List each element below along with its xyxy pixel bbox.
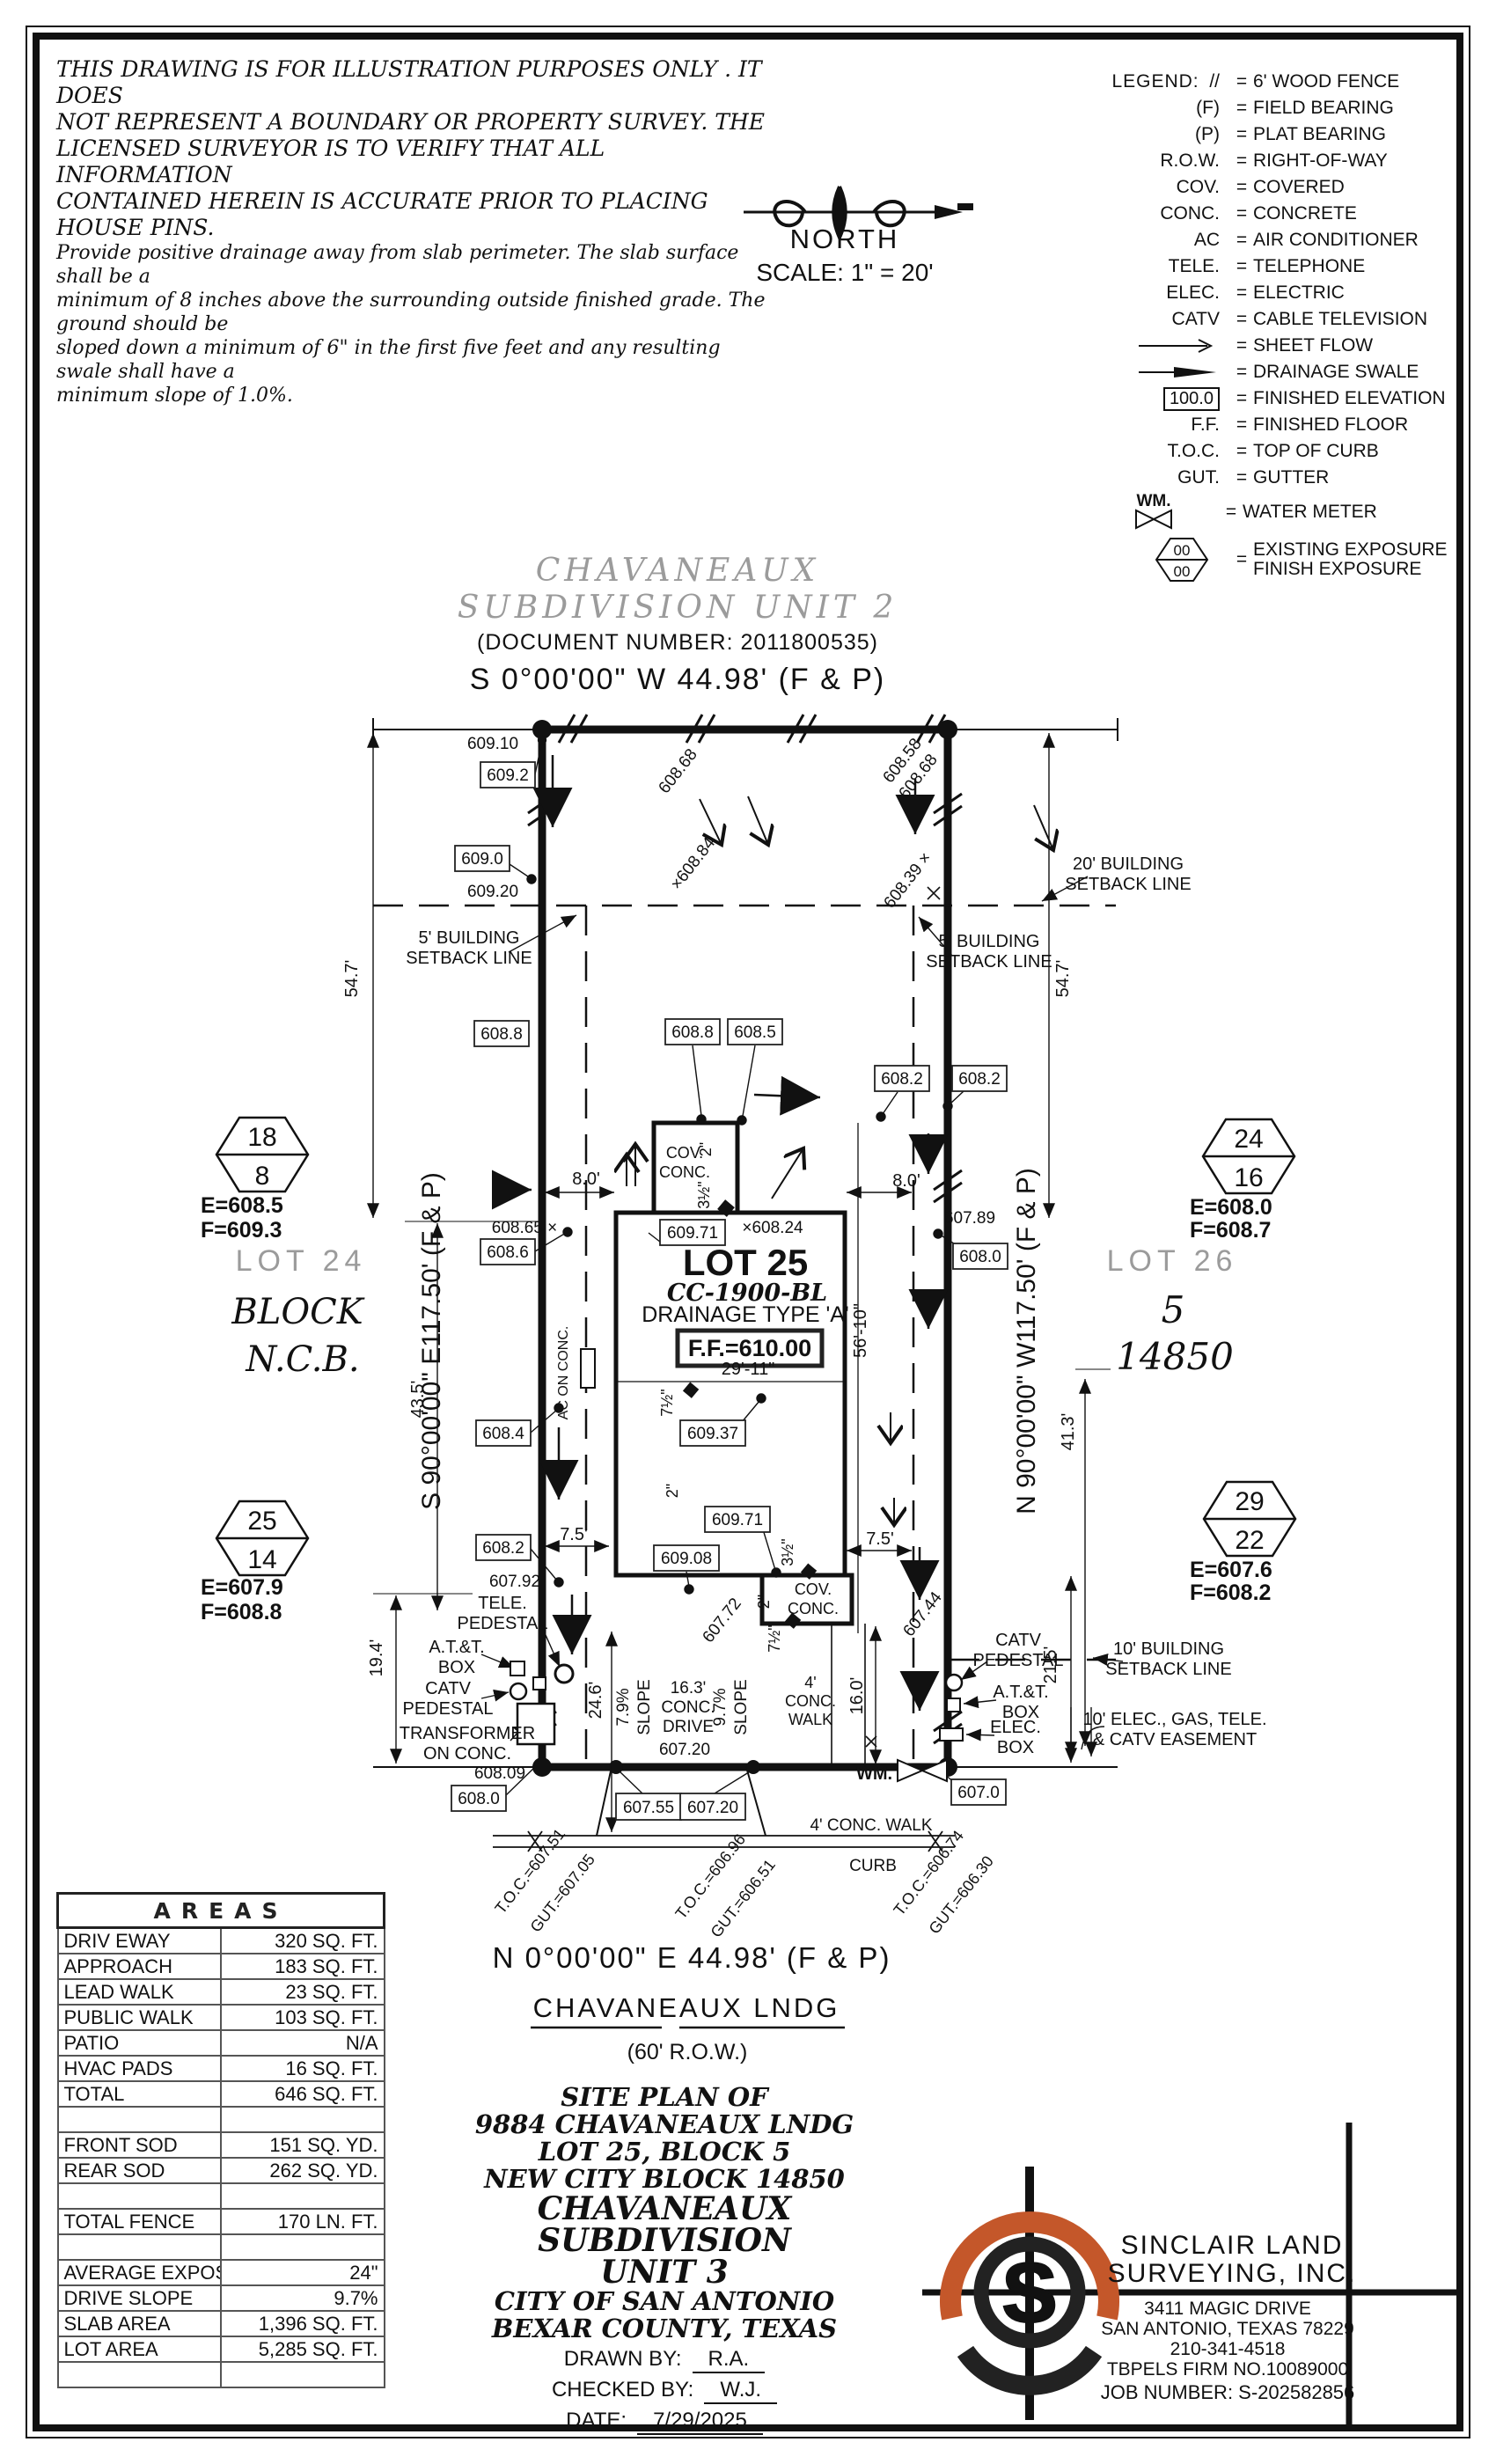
legend-symbol: R.O.W. [1098,150,1230,172]
table-row: PUBLIC WALK103 SQ. FT. [58,2005,385,2030]
dim-label: 2" [697,1142,715,1156]
dim-label: 29'-11" [722,1360,775,1379]
table-row: DRIVE SLOPE9.7% [58,2285,385,2311]
lot26-name: LOT 26 [1107,1244,1238,1278]
sheet-flow-icon [1098,335,1230,356]
north-label: NORTH [722,224,968,255]
areas-title: AREAS [58,1894,385,1928]
table-row [58,2362,385,2387]
equals: = [1230,467,1253,488]
site-info-block: SITE PLAN OF 9884 CHAVANEAUX LNDG LOT 25… [449,2084,880,2435]
equals: = [1230,98,1253,119]
finished-elevation-symbol: 100.0 [1163,387,1220,411]
equals: = [1230,309,1253,330]
legend-label: ELECTRIC [1253,283,1485,303]
area-label: TOTAL [58,2081,222,2107]
surveyor-firm: TBPELS FIRM NO.10089000 [1091,2359,1364,2380]
dim-label: 41.3' [1059,1413,1078,1451]
fence-symbol: // [1209,71,1220,92]
exposure-e: E=607.6 [1190,1558,1272,1582]
dim-label: 3½" [779,1538,796,1566]
elev-value: 608.2 [958,1070,1001,1089]
street-row: (60' R.O.W.) [627,2040,748,2064]
drainage-note-line: Provide positive drainage away from slab… [56,241,778,289]
equals: = [1220,502,1243,523]
surveyor-name: SURVEYING, INC. [1104,2260,1360,2288]
elev-value: 607.72 [699,1595,744,1646]
dim-label: 7.5' [560,1525,588,1544]
elev-value: 609.20 [467,883,518,901]
area-value: 151 SQ. YD. [221,2132,385,2158]
utility-label: PEDESTAL [973,1651,1064,1670]
slope-label: SLOPE [635,1679,654,1734]
dim-label: 24.6' [586,1682,605,1720]
easement-label: 10' ELEC., GAS, TELE. [1082,1710,1266,1729]
walk-label: 4' CONC. WALK [810,1816,932,1835]
hex-number: 29 [1235,1487,1264,1516]
hex-top: 00 [1174,542,1191,559]
elev-value: 608.2 [482,1539,524,1558]
area-label: DRIVE SLOPE [58,2285,222,2311]
legend-symbol: COV. [1098,177,1230,198]
elev-value: 608.8 [671,1023,714,1042]
disclaimer-line: NOT REPRESENT A BOUNDARY OR PROPERTY SUR… [56,109,778,136]
area-label [58,2183,222,2209]
hex-number: 18 [247,1123,276,1152]
area-label: REAR SOD [58,2158,222,2183]
site-plan-sheet: 609.2 609.0 608.8 608.6 608.4 608.2 608.… [0,0,1496,2464]
elev-value: 608.5 [734,1023,776,1042]
surveyor-name: SINCLAIR LAND [1104,2232,1360,2260]
lot24-ncb: N.C.B. [245,1339,359,1380]
area-label: LOT AREA [58,2336,222,2362]
exposure-f: F=608.7 [1190,1218,1271,1243]
area-value: 16 SQ. FT. [221,2056,385,2081]
table-row [58,2183,385,2209]
legend-label: COVERED [1253,178,1485,197]
legend-label: EXISTING EXPOSURE [1253,540,1485,560]
setback-label: 5' BUILDING [939,932,1040,951]
area-value: 170 LN. FT. [221,2209,385,2234]
legend-label: RIGHT-OF-WAY [1253,151,1485,171]
dim-label: 19.4' [367,1639,386,1677]
legend-label: PLAT BEARING [1253,125,1485,144]
hex-number: 14 [247,1545,276,1574]
area-label: AVERAGE EXPOSURE [58,2260,222,2285]
legend-symbol: CONC. [1098,203,1230,224]
dim-label: 56'-10" [851,1303,870,1358]
legend-label: CONCRETE [1253,204,1485,224]
area-label [58,2234,222,2260]
area-value: 183 SQ. FT. [221,1954,385,1979]
date-value: 7/29/2025 [637,2409,763,2435]
surveyor-job-number: JOB NUMBER: S-202582856 [1091,2382,1364,2402]
lot24-block: BLOCK [231,1292,364,1332]
ac-pad [581,1349,595,1388]
utility-label: PEDESTAL [458,1614,548,1633]
lot25-ff: F.F.=610.00 [688,1335,811,1361]
porch-label: CONC. [659,1163,710,1181]
setback-label: SETBACK LINE [406,949,532,968]
hex-number: 25 [247,1507,276,1536]
site-info-line: CITY OF SAN ANTONIO [449,2288,880,2315]
dim-label: 43.5' [408,1381,428,1419]
legend-symbol: (P) [1098,124,1230,145]
subdivision-name: CHAVANEAUX [352,553,1003,590]
elev-value: 608.65 × [492,1219,558,1237]
area-label [58,2362,222,2387]
utility-label: PEDESTAL [403,1699,494,1719]
legend-label: TOP OF CURB [1253,442,1485,461]
walk-label: CONC. [785,1692,836,1710]
legend-symbol: T.O.C. [1098,441,1230,462]
utility-label: TRANSFORMER [400,1724,535,1743]
table-row: FRONT SOD151 SQ. YD. [58,2132,385,2158]
dim-label: 7½" [658,1389,676,1416]
table-row [58,2234,385,2260]
equals: = [1230,230,1253,251]
table-row: LOT AREA5,285 SQ. FT. [58,2336,385,2362]
area-label [58,2107,222,2132]
legend-symbol: (F) [1098,98,1230,119]
elev-value: 609.10 [467,735,518,753]
dim-label: 7½" [766,1624,783,1652]
table-row: DRIV EWAY320 SQ. FT. [58,1928,385,1954]
hex-number: 22 [1235,1526,1264,1555]
disclaimer-line: THIS DRAWING IS FOR ILLUSTRATION PURPOSE… [56,56,778,109]
equals: = [1230,335,1253,356]
site-info-line: LOT 25, BLOCK 5 [449,2138,880,2166]
utility-label: A.T.&T. [993,1683,1048,1702]
elev-value: 608.2 [881,1070,923,1089]
table-row: LEAD WALK23 SQ. FT. [58,1979,385,2005]
drainage-swale-icon [1098,362,1230,383]
legend-title: LEGEND: [1111,71,1199,92]
site-info-line: BEXAR COUNTY, TEXAS [449,2315,880,2343]
dim-label: 54.7' [342,960,362,998]
equals: = [1230,71,1253,92]
site-info-line: 9884 CHAVANEAUX LNDG [449,2111,880,2138]
area-label: HVAC PADS [58,2056,222,2081]
legend-label: 6' WOOD FENCE [1253,72,1485,92]
area-value: 103 SQ. FT. [221,2005,385,2030]
legend-symbol: CATV [1098,309,1230,330]
lot25-drainage: DRAINAGE TYPE 'A' [642,1302,849,1327]
elev-value: 609.0 [461,850,503,869]
legend-label: DRAINAGE SWALE [1253,363,1485,382]
equals: = [1230,414,1253,436]
exposure-f: F=609.3 [201,1218,282,1243]
area-label: LEAD WALK [58,1979,222,2005]
site-info-line: SITE PLAN OF [449,2084,880,2111]
subdivision-header: CHAVANEAUX SUBDIVISION UNIT 2 (DOCUMENT … [352,553,1003,697]
legend-label: GUTTER [1253,468,1485,488]
exposure-e: E=607.9 [201,1575,283,1600]
areas-table: AREAS DRIV EWAY320 SQ. FT. APPROACH183 S… [56,1892,385,2388]
hex-number: 16 [1234,1163,1263,1192]
curb-label: CURB [849,1857,897,1875]
area-value [221,2107,385,2132]
elev-value: 607.20 [659,1741,710,1759]
porch-label: CONC. [788,1600,839,1617]
dim-label: 3½" [695,1181,713,1208]
drainage-note-line: minimum slope of 1.0%. [56,384,778,407]
surveyor-address-block: 3411 MAGIC DRIVE SAN ANTONIO, TEXAS 7822… [1091,2299,1364,2402]
slope-label: SLOPE [732,1679,751,1734]
dim-label: 2" [664,1484,681,1498]
lot26-ncb: 14850 [1116,1335,1234,1378]
setback-label: SETBACK LINE [1065,875,1191,894]
exposure-hex-icon: 00 00 [1098,534,1230,585]
area-value: 23 SQ. FT. [221,1979,385,2005]
hex-number: 24 [1234,1125,1263,1154]
checked-by-label: CHECKED BY: [552,2378,693,2402]
area-value: 320 SQ. FT. [221,1928,385,1954]
equals: = [1230,388,1253,409]
legend-symbol: F.F. [1098,414,1230,436]
surveyor-name-block: SINCLAIR LAND SURVEYING, INC. [1104,2232,1360,2288]
setback-label: SETBACK LINE [1105,1660,1231,1679]
lot25-name: LOT 25 [683,1242,808,1283]
table-row: SLAB AREA1,396 SQ. FT. [58,2311,385,2336]
legend-label: CABLE TELEVISION [1253,310,1485,329]
table-row: HVAC PADS16 SQ. FT. [58,2056,385,2081]
bearing-east: N 90°00'00" W117.50' (F & P) [1012,1168,1041,1514]
utility-label: CATV [425,1679,472,1698]
walk-label: 4' [804,1674,816,1691]
table-row: TOTAL646 SQ. FT. [58,2081,385,2107]
dim-label: 8.0' [892,1171,920,1191]
scale-label: SCALE: 1" = 20' [722,259,968,287]
bearing-west: S 90°00'00" E117.50' (F & P) [417,1172,446,1510]
legend-label: FINISH EXPOSURE [1253,560,1485,579]
street-name: CHAVANEAUX LNDG [533,1992,840,2023]
lot24-name: LOT 24 [236,1244,367,1278]
elev-value: 607.44 [899,1588,946,1640]
table-row: APPROACH183 SQ. FT. [58,1954,385,1979]
surveyor-address: 3411 MAGIC DRIVE [1091,2299,1364,2319]
area-label: PUBLIC WALK [58,2005,222,2030]
legend-symbol: ELEC. [1098,282,1230,304]
table-row: TOTAL FENCE170 LN. FT. [58,2209,385,2234]
dim-label: 54.7' [1053,960,1073,998]
disclaimer-line: CONTAINED HEREIN IS ACCURATE PRIOR TO PL… [56,188,778,241]
area-value: N/A [221,2030,385,2056]
equals: = [1230,282,1253,304]
area-value: 262 SQ. YD. [221,2158,385,2183]
area-label: TOTAL FENCE [58,2209,222,2234]
legend-label: TELEPHONE [1253,257,1485,276]
area-value: 5,285 SQ. FT. [221,2336,385,2362]
elev-value: 607.92 [489,1573,540,1591]
bearing-south: N 0°00'00" E 44.98' (F & P) [493,1941,891,1974]
legend-label: FINISHED FLOOR [1253,415,1485,435]
dim-label: 7.5' [866,1529,894,1549]
setback-label: 5' BUILDING [419,928,520,948]
dim-label: 2" [755,1595,773,1609]
water-meter-icon: WM. [1098,495,1220,530]
equals: = [1230,549,1253,570]
ac-label: AC ON CONC. [556,1326,571,1420]
disclaimer-note: THIS DRAWING IS FOR ILLUSTRATION PURPOSE… [56,56,778,407]
elev-value: 609.2 [487,766,529,785]
utility-label: BOX [438,1658,475,1677]
utility-label: TELE. [478,1594,527,1613]
elev-value: 607.55 [623,1799,674,1817]
surveyor-logo: S [950,2167,1109,2420]
table-row: PATION/A [58,2030,385,2056]
table-row: REAR SOD262 SQ. YD. [58,2158,385,2183]
legend-label: FINISHED ELEVATION [1253,389,1485,408]
equals: = [1230,150,1253,172]
disclaimer-line: LICENSED SURVEYOR IS TO VERIFY THAT ALL … [56,136,778,188]
legend: LEGEND: // = 6' WOOD FENCE (F)=FIELD BEA… [1098,69,1485,586]
equals: = [1230,203,1253,224]
surveyor-address: SAN ANTONIO, TEXAS 78229 [1091,2319,1364,2339]
slope-label: 7.9% [614,1688,633,1726]
setback-label: 10' BUILDING [1113,1639,1224,1659]
elev-value: 608.68 [655,745,700,797]
area-label: SLAB AREA [58,2311,222,2336]
wm-symbol: WM. [1136,495,1170,509]
table-row: AVERAGE EXPOSURE24" [58,2260,385,2285]
equals: = [1230,177,1253,198]
equals: = [1230,256,1253,277]
drive-label: DRIVE [663,1718,714,1736]
utility-label: ELEC. [990,1718,1041,1737]
drainage-note-line: minimum of 8 inches above the surroundin… [56,289,778,336]
lot26-block: 5 [1162,1288,1185,1331]
table-row [58,2107,385,2132]
water-meter-label: WM. [856,1764,892,1784]
elev-value: 608.4 [482,1425,524,1443]
area-value: 646 SQ. FT. [221,2081,385,2107]
elev-value: 608.0 [959,1248,1001,1266]
utility-label: ON CONC. [423,1744,511,1764]
drawn-by-value: R.A. [693,2347,766,2373]
exposure-e: E=608.5 [201,1193,283,1218]
elev-value: ×608.24 [742,1219,803,1237]
legend-label: AIR CONDITIONER [1253,231,1485,250]
legend-symbol: AC [1098,230,1230,251]
setback-label: 20' BUILDING [1073,854,1184,874]
elev-value: 608.39 × [880,849,935,913]
area-value [221,2183,385,2209]
elev-value: 609.37 [687,1425,738,1443]
equals: = [1230,124,1253,145]
legend-label: FIELD BEARING [1253,99,1485,118]
site-info-line: UNIT 3 [449,2256,880,2288]
logo-letter: S [1001,2246,1058,2340]
area-label: FRONT SOD [58,2132,222,2158]
elev-value: 608.09 [474,1764,525,1783]
elev-value: 609.71 [712,1511,763,1529]
utility-label: A.T.&T. [429,1638,484,1657]
elev-value: 609.71 [667,1224,718,1243]
area-label: APPROACH [58,1954,222,1979]
site-info-line: CHAVANEAUX SUBDIVISION [449,2193,880,2256]
document-number: (DOCUMENT NUMBER: 2011800535) [352,630,1003,656]
area-label: DRIV EWAY [58,1928,222,1954]
date-label: DATE: [566,2409,627,2433]
elev-value: ×608.84 [667,834,719,894]
utility-label: CATV [995,1631,1042,1650]
area-value: 1,396 SQ. FT. [221,2311,385,2336]
hex-bottom: 00 [1174,563,1191,580]
porch-label: COV. [795,1580,832,1598]
dim-label: 8.0' [572,1170,600,1189]
equals: = [1230,362,1253,383]
surveyor-phone: 210-341-4518 [1091,2339,1364,2359]
dim-label: 16.0' [847,1677,867,1715]
elev-value: 608.8 [480,1025,523,1044]
drive-label: 16.3' [671,1679,707,1698]
drawn-by-label: DRAWN BY: [564,2347,682,2372]
hex-number: 8 [255,1162,270,1191]
area-value [221,2362,385,2387]
exposure-f: F=608.8 [201,1600,282,1624]
drainage-note-line: sloped down a minimum of 6" in the first… [56,336,778,384]
area-value [221,2234,385,2260]
subdivision-name: SUBDIVISION UNIT 2 [352,590,1003,627]
easement-label: & CATV EASEMENT [1093,1730,1257,1749]
checked-by-value: W.J. [704,2378,777,2404]
legend-label: WATER METER [1243,502,1485,522]
elev-value: 608.6 [487,1243,529,1262]
bearing-north-label: S 0°00'00" W 44.98' (F & P) [352,663,1003,697]
setback-label: SETBACK LINE [926,952,1052,972]
site-info-line: NEW CITY BLOCK 14850 [449,2166,880,2193]
legend-symbol: TELE. [1098,256,1230,277]
equals: = [1230,441,1253,462]
area-value: 9.7% [221,2285,385,2311]
elev-value: 609.08 [661,1550,712,1568]
elev-value: 607.20 [687,1799,738,1817]
area-value: 24" [221,2260,385,2285]
area-label: PATIO [58,2030,222,2056]
exposure-f: F=608.2 [1190,1580,1271,1605]
elev-value: 607.0 [957,1784,1000,1802]
elev-value: 607.89 [944,1209,995,1228]
elev-value: 608.0 [458,1790,500,1808]
legend-symbol: GUT. [1098,467,1230,488]
utility-label: BOX [997,1738,1034,1757]
north-scale-block: NORTH SCALE: 1" = 20' [722,222,968,287]
walk-label: WALK [788,1711,832,1728]
drive-label: CONC. [661,1698,715,1717]
legend-label: SHEET FLOW [1253,336,1485,356]
exposure-e: E=608.0 [1190,1195,1272,1220]
